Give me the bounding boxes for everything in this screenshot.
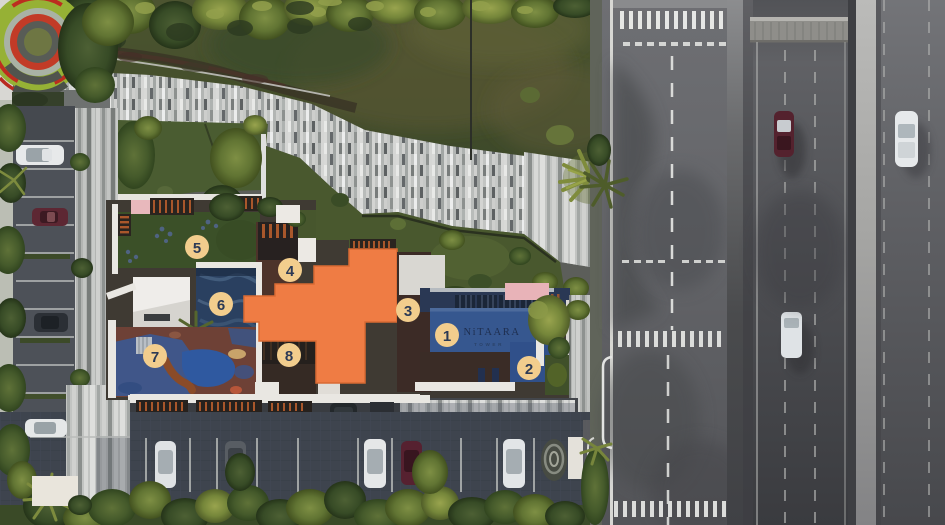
svg-text:3: 3 [404, 303, 412, 320]
svg-text:4: 4 [286, 263, 295, 280]
svg-text:TOWER: TOWER [474, 342, 504, 347]
svg-text:8: 8 [285, 348, 293, 365]
svg-text:5: 5 [193, 240, 201, 257]
svg-text:1: 1 [443, 328, 451, 345]
svg-text:6: 6 [217, 297, 225, 314]
svg-text:7: 7 [151, 349, 159, 366]
svg-text:NiTAARA: NiTAARA [463, 327, 520, 338]
svg-text:2: 2 [525, 361, 533, 378]
